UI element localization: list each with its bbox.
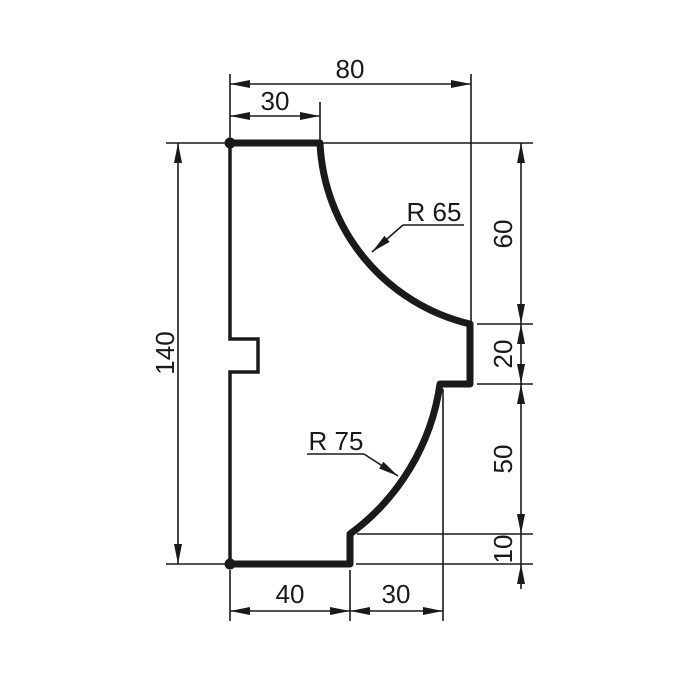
dim-label-bottom-flat-width: 40 [276, 579, 305, 609]
dim-label-middle-step-height: 20 [488, 340, 518, 369]
dim-label-total-width: 80 [336, 54, 365, 84]
dim-label-upper-right-height: 60 [488, 220, 518, 249]
dim-label-lower-right-height: 50 [488, 445, 518, 474]
dim-label-lower-radius: R 75 [309, 426, 364, 456]
profile-corner-dot-bottom-left [225, 559, 236, 570]
dim-label-bottom-right-width: 30 [382, 579, 411, 609]
dim-label-bottom-step-height: 10 [488, 535, 518, 564]
profile-corner-dot-top-left [225, 138, 236, 149]
dimension-labels: 80 30 140 60 20 50 10 40 30 R 65 R 75 [150, 54, 518, 609]
technical-drawing-molding-profile: 80 30 140 60 20 50 10 40 30 R 65 R 75 [0, 0, 686, 686]
profile-back-edge-notch [230, 145, 258, 562]
leader-arrow-r65 [372, 225, 403, 252]
dim-label-upper-radius: R 65 [407, 197, 462, 227]
dim-label-top-flat-width: 30 [261, 86, 290, 116]
leader-arrow-r75 [364, 454, 398, 476]
dim-label-total-height: 140 [150, 331, 180, 374]
